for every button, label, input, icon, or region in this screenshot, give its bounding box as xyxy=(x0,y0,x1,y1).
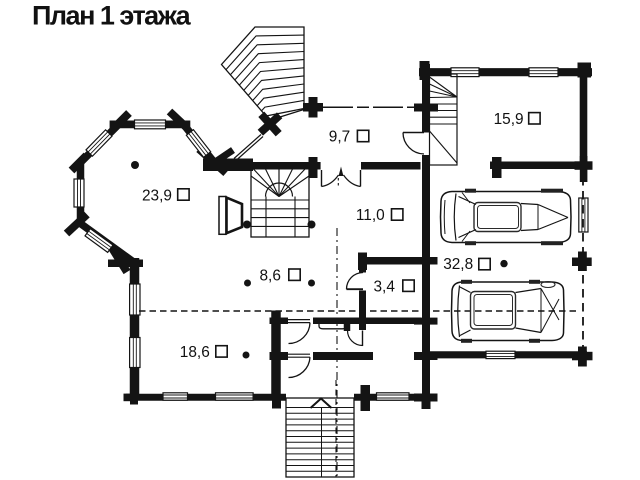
svg-text:План 1 этажа: План 1 этажа xyxy=(32,1,192,31)
svg-text:11,0: 11,0 xyxy=(356,207,385,224)
svg-text:18,6: 18,6 xyxy=(180,344,210,361)
svg-text:15,9: 15,9 xyxy=(494,111,524,128)
svg-text:8,6: 8,6 xyxy=(260,268,281,285)
svg-text:23,9: 23,9 xyxy=(142,187,172,204)
svg-text:32,8: 32,8 xyxy=(443,256,473,273)
svg-text:3,4: 3,4 xyxy=(374,278,396,295)
svg-text:9,7: 9,7 xyxy=(329,129,350,146)
